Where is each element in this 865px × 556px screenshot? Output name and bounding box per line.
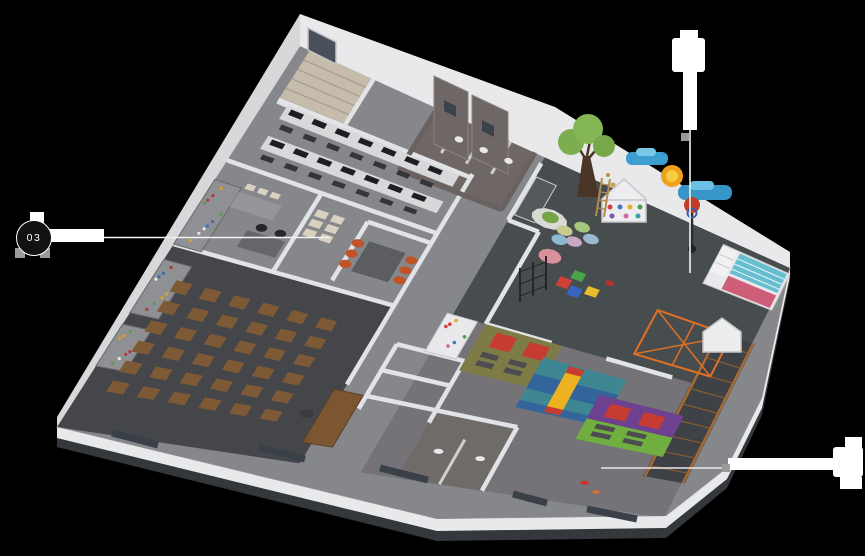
9: [145, 308, 148, 311]
9: [165, 293, 168, 296]
6: [453, 341, 457, 345]
10: [203, 227, 206, 230]
10: [203, 201, 206, 204]
9: [160, 296, 163, 299]
8: [128, 350, 131, 353]
10: [197, 232, 200, 235]
10: [211, 220, 214, 223]
8: [118, 357, 121, 360]
10: [219, 213, 222, 216]
hotspot-label: 03: [27, 232, 42, 244]
8: [124, 353, 127, 356]
9: [162, 272, 165, 275]
6: [446, 344, 450, 348]
floorplan-viewer: 03: [0, 0, 865, 556]
10: [189, 239, 192, 242]
6: [448, 322, 452, 326]
hotspot-ring: 03: [16, 220, 52, 256]
8: [129, 330, 132, 333]
basketball-board: [684, 197, 700, 213]
marker-top-handle: [681, 133, 689, 141]
9: [169, 266, 172, 269]
marker-right-handle: [722, 464, 730, 472]
marker-shape: [833, 447, 863, 477]
tree-canopy: [593, 135, 615, 157]
hotspot-marker-top[interactable]: [672, 30, 706, 74]
6: [454, 319, 458, 323]
marker-right-bar: [728, 458, 833, 470]
10: [206, 199, 209, 202]
6: [463, 335, 467, 339]
10: [206, 224, 209, 227]
hotspot-marker-right[interactable]: [833, 437, 865, 491]
hotspot-marker-03[interactable]: 03: [15, 212, 67, 272]
marker-shape: [672, 38, 705, 72]
10: [220, 187, 223, 190]
8: [111, 361, 114, 364]
floorplan-scene: [0, 0, 865, 556]
marker-shape: [840, 477, 862, 489]
marker-top-bar: [683, 71, 697, 130]
toilet: [475, 456, 485, 461]
9: [154, 278, 157, 281]
10: [211, 194, 214, 197]
8: [118, 337, 121, 340]
6: [444, 325, 448, 329]
8: [122, 334, 125, 337]
9: [157, 275, 160, 278]
9: [153, 302, 156, 305]
